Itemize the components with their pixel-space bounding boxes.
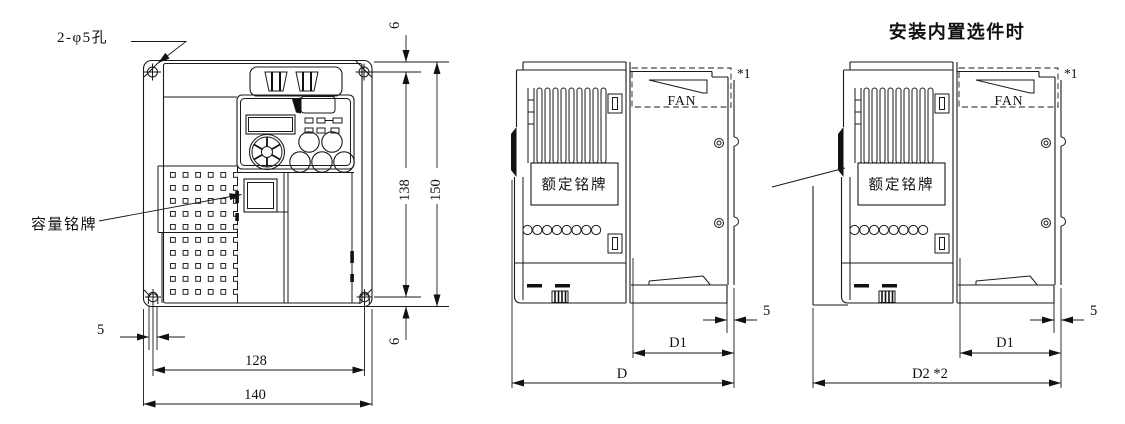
option-view: 安装内置选件时 FAN *1 额定铭牌 5 D1 D2 *2 <box>772 21 1097 388</box>
dim-depth: D2 *2 <box>912 366 948 382</box>
dim-hole-pitch-h: 128 <box>245 353 267 369</box>
front-lower-cover <box>235 173 354 304</box>
dim-d1: D1 <box>669 335 687 351</box>
side-view: FAN *1 额定铭牌 5 D1 D <box>511 62 770 388</box>
footnote-1: *1 <box>1064 66 1078 81</box>
capacity-nameplate-label: 容量铭牌 <box>31 216 97 233</box>
option-front-cover <box>772 168 848 305</box>
hole-callout: 2-φ5孔 <box>57 29 186 63</box>
front-view: 2-φ5孔 容量铭牌 6 138 150 6 5 128 140 <box>31 22 449 406</box>
dim-rear-ledge: 5 <box>1090 303 1097 319</box>
rated-nameplate-label: 额定铭牌 <box>542 177 608 194</box>
setting-dial <box>250 135 285 170</box>
panel-indicator-leds <box>305 118 342 133</box>
footnote-1: *1 <box>737 66 751 81</box>
hole-callout-label: 2-φ5孔 <box>57 29 108 46</box>
dim-rear-ledge: 5 <box>763 303 770 319</box>
top-handle <box>250 67 342 96</box>
dim-width: 140 <box>244 387 266 403</box>
dim-depth: D <box>617 366 627 382</box>
fan-label: FAN <box>994 93 1023 108</box>
panel-buttons <box>290 132 354 172</box>
drawing-canvas: 2-φ5孔 容量铭牌 6 138 150 6 5 128 140 FAN *1 … <box>0 0 1125 424</box>
dim-height: 150 <box>428 179 444 201</box>
dim-bottom-offset: 6 <box>387 338 403 345</box>
dim-slot-width: 5 <box>97 322 104 338</box>
heatsink-vent-grid <box>158 166 238 303</box>
dimension-drawing: 2-φ5孔 容量铭牌 6 138 150 6 5 128 140 FAN *1 … <box>0 0 1125 424</box>
io-connector-cover <box>292 97 335 114</box>
rated-nameplate-label: 额定铭牌 <box>869 177 935 194</box>
fan-label: FAN <box>667 93 696 108</box>
dim-top-offset: 6 <box>387 22 403 29</box>
dim-d1: D1 <box>996 335 1014 351</box>
dim-hole-pitch-v: 138 <box>397 179 413 201</box>
option-view-heading: 安装内置选件时 <box>889 21 1026 42</box>
capacity-nameplate-box <box>244 179 277 212</box>
side-dimensions: 5 D1 D <box>512 180 770 388</box>
